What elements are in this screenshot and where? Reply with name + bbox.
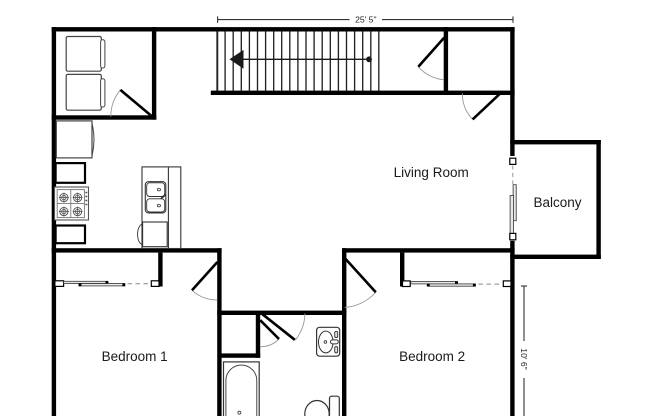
svg-text:Bedroom 2: Bedroom 2 — [399, 349, 465, 364]
svg-text:Living Room: Living Room — [394, 165, 469, 180]
svg-text:25' 5": 25' 5" — [355, 15, 376, 25]
svg-text:Bedroom 1: Bedroom 1 — [102, 349, 168, 364]
svg-text:Balcony: Balcony — [533, 195, 581, 210]
svg-text:10' 6": 10' 6" — [519, 348, 529, 369]
